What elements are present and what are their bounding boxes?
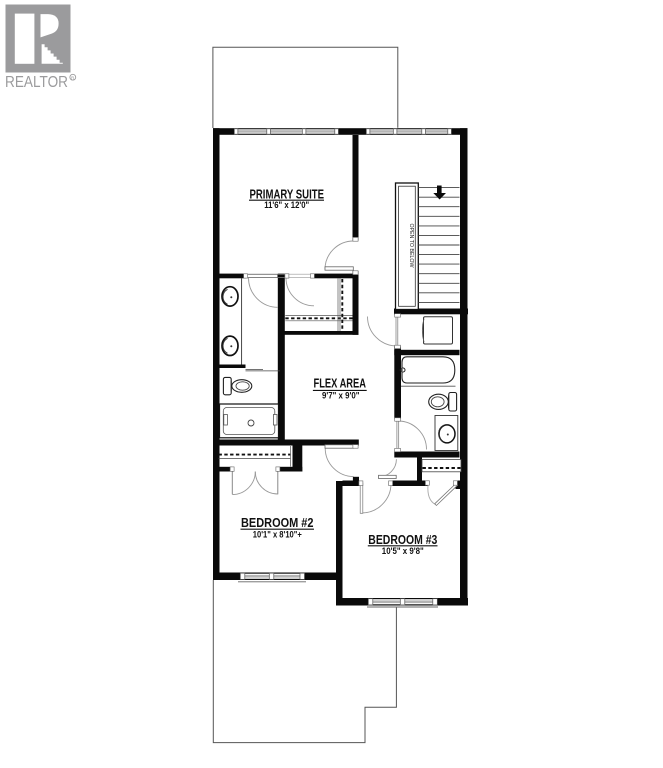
svg-text:10'5" x 9'8": 10'5" x 9'8"	[382, 546, 424, 556]
svg-text:BEDROOM #2: BEDROOM #2	[241, 516, 314, 530]
svg-text:BEDROOM #3: BEDROOM #3	[368, 533, 437, 547]
svg-text:REALTOR: REALTOR	[5, 74, 68, 91]
svg-text:9'7" x 9'0": 9'7" x 9'0"	[322, 391, 360, 401]
svg-text:10'1" x 8'10"+: 10'1" x 8'10"+	[253, 530, 302, 540]
svg-text:11'6" x 12'0": 11'6" x 12'0"	[264, 200, 309, 210]
svg-text:OPEN TO BELOW: OPEN TO BELOW	[408, 224, 414, 268]
svg-text:FLEX AREA: FLEX AREA	[314, 376, 367, 390]
